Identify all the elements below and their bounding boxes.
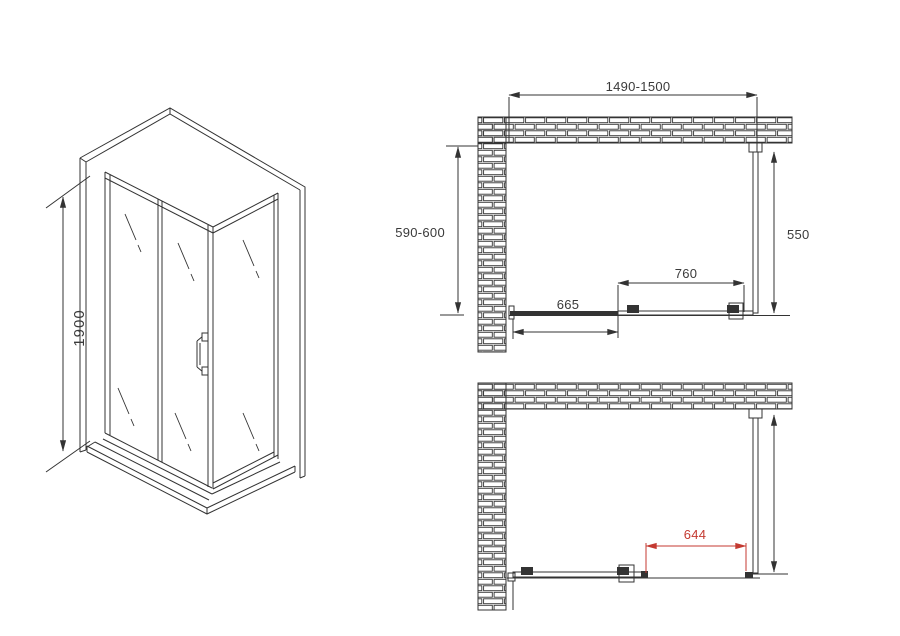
dimension-left-depth-label: 590-600	[395, 225, 445, 240]
wall-bracket	[749, 143, 762, 152]
dimension-overall-width-label: 1490-1500	[606, 79, 671, 94]
glass-shine-marks	[118, 214, 259, 451]
door-end-stop	[641, 571, 648, 578]
dimension-side-panel-unlabeled	[748, 415, 788, 574]
dimension-left-depth: 590-600	[395, 146, 478, 315]
shower-frame	[105, 172, 278, 489]
wall-outline	[80, 108, 305, 478]
side-panel	[753, 152, 758, 313]
dimension-fixed-panel: 665	[513, 297, 618, 339]
isometric-view: 1900	[46, 108, 305, 514]
roller-left	[521, 567, 533, 575]
dimension-door-width-label: 760	[675, 266, 698, 281]
rail-end-bracket	[745, 572, 753, 578]
plan-view-door-open: 644	[478, 383, 792, 610]
brick-wall-left	[478, 117, 506, 352]
side-panel	[753, 418, 758, 573]
dimension-side-panel-label: 550	[787, 227, 810, 242]
technical-drawing-canvas: 1900 1490-1500 590-600 550	[0, 0, 900, 636]
dimension-height-label: 1900	[71, 309, 88, 346]
brick-wall-top	[478, 117, 792, 143]
brick-wall-top	[478, 383, 792, 409]
dimension-side-panel: 550	[774, 152, 810, 313]
wall-bracket	[749, 409, 762, 418]
technical-drawing-page: 1900 1490-1500 590-600 550	[0, 0, 900, 636]
door-handle	[197, 333, 208, 375]
brick-wall-left	[478, 383, 506, 610]
base-tray	[87, 433, 295, 514]
roller-left	[627, 305, 639, 313]
dimension-opening-label: 644	[684, 527, 707, 542]
plan-view-door-closed: 1490-1500 590-600 550 760 665	[395, 79, 809, 352]
dimension-opening: 644	[646, 527, 746, 573]
dimension-fixed-panel-label: 665	[557, 297, 580, 312]
dimension-height: 1900	[46, 176, 90, 472]
dimension-door-width: 760	[618, 266, 744, 338]
